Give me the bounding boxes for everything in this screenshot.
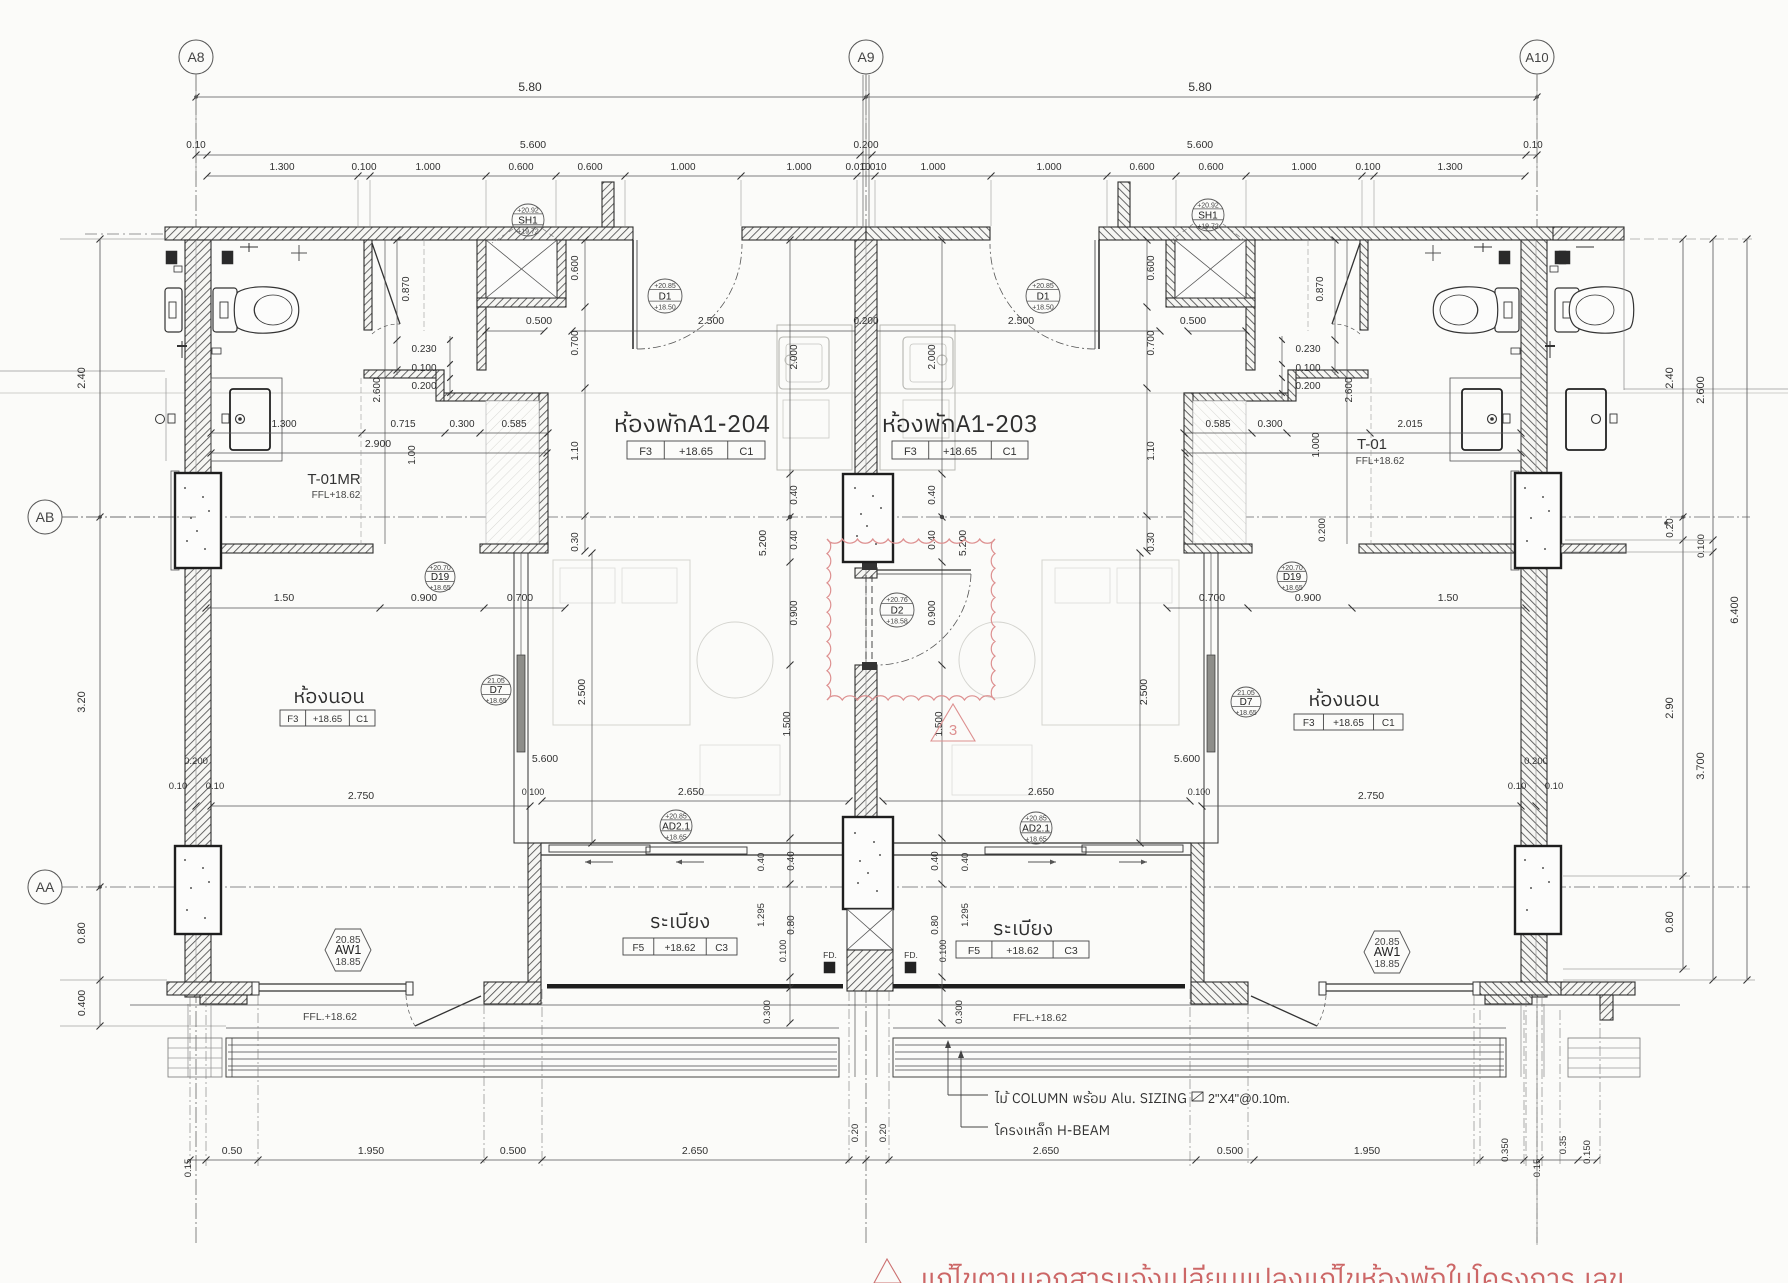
- svg-text:5.80: 5.80: [1188, 80, 1212, 94]
- svg-text:0.600: 0.600: [570, 255, 581, 280]
- svg-text:0.40: 0.40: [756, 853, 767, 872]
- svg-text:2.600: 2.600: [1695, 376, 1707, 404]
- svg-text:C1: C1: [1003, 446, 1017, 458]
- svg-text:5.600: 5.600: [520, 139, 546, 151]
- svg-text:0.10: 0.10: [1545, 781, 1564, 792]
- svg-text:FFL.+18.62: FFL.+18.62: [1013, 1012, 1067, 1024]
- svg-text:0.100: 0.100: [778, 940, 788, 963]
- svg-text:C1: C1: [356, 714, 368, 725]
- svg-text:SH1: SH1: [1198, 210, 1218, 221]
- svg-text:+18.65: +18.65: [1281, 585, 1303, 592]
- svg-text:0.40: 0.40: [927, 530, 938, 550]
- svg-text:+20.70: +20.70: [1281, 565, 1303, 572]
- svg-text:0.715: 0.715: [390, 419, 415, 430]
- svg-text:1.50: 1.50: [1438, 592, 1459, 604]
- svg-text:0.40: 0.40: [786, 851, 797, 871]
- svg-text:5.600: 5.600: [1187, 139, 1213, 151]
- svg-text:2.600: 2.600: [1344, 377, 1355, 402]
- svg-text:0.100: 0.100: [1295, 363, 1320, 374]
- svg-text:0.40: 0.40: [960, 853, 971, 872]
- svg-text:0.200: 0.200: [1524, 756, 1548, 767]
- svg-text:0.200: 0.200: [853, 316, 878, 327]
- svg-text:+20.85: +20.85: [1025, 815, 1047, 822]
- svg-text:A10: A10: [1525, 50, 1548, 65]
- svg-text:+18.65: +18.65: [313, 714, 342, 725]
- svg-text:1.295: 1.295: [756, 903, 767, 927]
- svg-text:0.100: 0.100: [522, 787, 545, 797]
- svg-text:1.500: 1.500: [782, 711, 793, 736]
- svg-text:0.100: 0.100: [411, 363, 436, 374]
- svg-text:0.500: 0.500: [1217, 1145, 1243, 1157]
- svg-text:A9: A9: [857, 49, 874, 65]
- svg-text:0.100: 0.100: [1696, 534, 1707, 558]
- svg-text:2.750: 2.750: [348, 790, 374, 802]
- svg-text:0.900: 0.900: [1295, 592, 1321, 604]
- svg-text:0.200: 0.200: [1295, 381, 1320, 392]
- svg-text:18.85: 18.85: [335, 957, 360, 968]
- svg-text:2.500: 2.500: [1138, 679, 1150, 705]
- svg-text:0.230: 0.230: [411, 344, 436, 355]
- svg-text:0.10: 0.10: [1508, 781, 1527, 792]
- svg-text:0.10: 0.10: [186, 140, 206, 151]
- svg-text:2.600: 2.600: [372, 377, 383, 402]
- svg-text:C1: C1: [739, 446, 753, 458]
- svg-text:21.05: 21.05: [487, 678, 505, 685]
- svg-text:5.600: 5.600: [532, 753, 558, 765]
- svg-text:0.100: 0.100: [351, 162, 376, 173]
- svg-text:2.650: 2.650: [682, 1145, 708, 1157]
- svg-text:+20.85: +20.85: [654, 283, 676, 290]
- svg-text:+18.65: +18.65: [665, 834, 687, 841]
- svg-text:0.010: 0.010: [861, 162, 886, 173]
- svg-text:0.600: 0.600: [577, 162, 602, 173]
- svg-text:+20.85: +20.85: [665, 813, 687, 820]
- svg-text:0.900: 0.900: [411, 592, 437, 604]
- svg-text:2.000: 2.000: [789, 344, 800, 369]
- svg-text:0.80: 0.80: [786, 915, 797, 935]
- svg-text:0.200: 0.200: [853, 140, 878, 151]
- svg-text:1.300: 1.300: [269, 162, 294, 173]
- svg-text:0.300: 0.300: [762, 1000, 773, 1024]
- svg-text:+18.50: +18.50: [654, 305, 676, 312]
- svg-text:0.35: 0.35: [1558, 1136, 1569, 1155]
- svg-text:+18.50: +18.50: [1032, 305, 1054, 312]
- svg-text:+18.58: +18.58: [886, 619, 908, 626]
- svg-text:0.15: 0.15: [183, 1159, 194, 1178]
- svg-text:0.200: 0.200: [1317, 518, 1328, 542]
- svg-text:0.870: 0.870: [1315, 276, 1326, 301]
- svg-text:2.40: 2.40: [1664, 367, 1676, 388]
- svg-text:5.600: 5.600: [1174, 753, 1200, 765]
- svg-text:0.300: 0.300: [954, 1000, 965, 1024]
- svg-text:2.650: 2.650: [1033, 1145, 1059, 1157]
- svg-text:0.300: 0.300: [449, 419, 474, 430]
- svg-text:0.15: 0.15: [1532, 1159, 1543, 1178]
- svg-text:1.50: 1.50: [274, 592, 295, 604]
- svg-text:0.300: 0.300: [1257, 419, 1282, 430]
- svg-text:+19.72: +19.72: [1197, 223, 1219, 230]
- svg-text:F3: F3: [1303, 718, 1315, 729]
- svg-text:1.000: 1.000: [1036, 162, 1061, 173]
- svg-text:1.295: 1.295: [960, 903, 971, 927]
- svg-text:1.000: 1.000: [415, 162, 440, 173]
- svg-text:5.200: 5.200: [757, 530, 769, 556]
- svg-text:0.700: 0.700: [1199, 592, 1225, 604]
- svg-text:0.500: 0.500: [500, 1145, 526, 1157]
- svg-text:5.80: 5.80: [518, 80, 542, 94]
- svg-text:1.950: 1.950: [358, 1145, 384, 1157]
- svg-text:+18.65: +18.65: [679, 446, 713, 458]
- svg-text:0.700: 0.700: [570, 330, 581, 355]
- svg-text:2.650: 2.650: [678, 786, 704, 798]
- svg-text:2.500: 2.500: [576, 679, 588, 705]
- svg-text:+18.62: +18.62: [1006, 945, 1039, 957]
- svg-text:0.585: 0.585: [1205, 419, 1230, 430]
- svg-text:0.40: 0.40: [789, 530, 800, 550]
- svg-text:1.000: 1.000: [1291, 162, 1316, 173]
- svg-text:0.20: 0.20: [878, 1124, 889, 1143]
- svg-text:FD.: FD.: [904, 950, 918, 960]
- svg-text:AW1: AW1: [1374, 945, 1401, 959]
- svg-text:1.950: 1.950: [1354, 1145, 1380, 1157]
- svg-text:0.10: 0.10: [1523, 140, 1543, 151]
- svg-text:+18.65: +18.65: [1333, 718, 1364, 729]
- svg-text:+19.72: +19.72: [517, 228, 539, 235]
- svg-text:3: 3: [949, 722, 957, 739]
- svg-text:1.000: 1.000: [1311, 432, 1322, 457]
- svg-text:0.500: 0.500: [1180, 315, 1206, 327]
- svg-text:0.40: 0.40: [930, 851, 941, 871]
- svg-text:F3: F3: [639, 446, 652, 458]
- svg-text:SH1: SH1: [518, 215, 538, 226]
- svg-text:2.40: 2.40: [76, 367, 88, 388]
- svg-text:0.200: 0.200: [411, 381, 436, 392]
- svg-text:1.300: 1.300: [1437, 162, 1462, 173]
- svg-text:0.400: 0.400: [76, 990, 88, 1016]
- svg-text:0.30: 0.30: [1146, 532, 1157, 552]
- svg-text:D7: D7: [1240, 697, 1253, 708]
- svg-text:0.585: 0.585: [501, 419, 526, 430]
- svg-text:D7: D7: [490, 685, 503, 696]
- svg-text:0.150: 0.150: [1582, 1140, 1593, 1164]
- svg-text:AD2.1: AD2.1: [1022, 823, 1050, 834]
- svg-text:F5: F5: [968, 945, 980, 957]
- svg-text:FD.: FD.: [823, 950, 837, 960]
- svg-text:C1: C1: [1382, 718, 1395, 729]
- svg-text:0.80: 0.80: [1664, 911, 1676, 932]
- svg-text:C3: C3: [715, 943, 728, 954]
- svg-text:1.00: 1.00: [407, 445, 418, 465]
- svg-text:0.870: 0.870: [401, 276, 412, 301]
- svg-text:+20.92: +20.92: [1197, 202, 1219, 209]
- svg-text:1.000: 1.000: [786, 162, 811, 173]
- svg-text:D19: D19: [431, 572, 450, 583]
- svg-text:0.600: 0.600: [1146, 255, 1157, 280]
- svg-text:2.90: 2.90: [1664, 697, 1676, 718]
- svg-text:0.600: 0.600: [508, 162, 533, 173]
- svg-text:0.900: 0.900: [789, 600, 800, 625]
- svg-text:A8: A8: [187, 49, 204, 65]
- svg-text:T-01: T-01: [1357, 436, 1387, 453]
- svg-text:FFL+18.62: FFL+18.62: [312, 490, 361, 501]
- svg-text:F5: F5: [633, 943, 645, 954]
- svg-text:6.400: 6.400: [1729, 596, 1741, 624]
- svg-text:1.10: 1.10: [570, 441, 581, 461]
- svg-text:2.000: 2.000: [927, 344, 938, 369]
- svg-text:D1: D1: [659, 292, 672, 303]
- svg-text:0.100: 0.100: [1188, 787, 1211, 797]
- svg-text:0.700: 0.700: [1146, 330, 1157, 355]
- svg-text:+20.76: +20.76: [886, 597, 908, 604]
- svg-text:0.10: 0.10: [206, 781, 225, 792]
- svg-text:0.700: 0.700: [507, 592, 533, 604]
- svg-text:0.600: 0.600: [1129, 162, 1154, 173]
- svg-text:0.50: 0.50: [222, 1145, 243, 1157]
- svg-text:AW1: AW1: [335, 943, 362, 957]
- svg-text:FFL+18.62: FFL+18.62: [1356, 456, 1405, 467]
- svg-text:0.500: 0.500: [526, 315, 552, 327]
- svg-text:2.500: 2.500: [1008, 315, 1034, 327]
- svg-text:D1: D1: [1037, 292, 1050, 303]
- svg-text:1.300: 1.300: [271, 419, 296, 430]
- svg-text:2.500: 2.500: [698, 315, 724, 327]
- svg-text:T-01MR: T-01MR: [307, 471, 361, 488]
- svg-text:0.600: 0.600: [1198, 162, 1223, 173]
- svg-text:+18.62: +18.62: [665, 943, 696, 954]
- svg-text:0.30: 0.30: [570, 532, 581, 552]
- svg-text:0.20: 0.20: [850, 1124, 861, 1143]
- svg-text:1.000: 1.000: [920, 162, 945, 173]
- svg-text:+18.65: +18.65: [943, 446, 977, 458]
- svg-text:AB: AB: [36, 509, 55, 525]
- svg-text:+18.65: +18.65: [485, 698, 507, 705]
- svg-text:+18.65: +18.65: [1025, 836, 1047, 843]
- svg-text:3.20: 3.20: [76, 691, 88, 712]
- svg-text:+18.65: +18.65: [429, 585, 451, 592]
- svg-text:2.900: 2.900: [365, 438, 391, 450]
- svg-text:2.650: 2.650: [1028, 786, 1054, 798]
- svg-text:0.80: 0.80: [76, 922, 88, 943]
- svg-text:0.230: 0.230: [1295, 344, 1320, 355]
- svg-text:0.40: 0.40: [927, 485, 938, 505]
- svg-text:1.000: 1.000: [670, 162, 695, 173]
- svg-text:0.10: 0.10: [169, 781, 188, 792]
- svg-text:F3: F3: [904, 446, 917, 458]
- svg-text:2"X4"@0.10m.: 2"X4"@0.10m.: [1208, 1092, 1290, 1106]
- svg-text:1.10: 1.10: [1146, 441, 1157, 461]
- svg-text:0.40: 0.40: [789, 485, 800, 505]
- svg-text:+18.65: +18.65: [1235, 710, 1257, 717]
- svg-text:D19: D19: [1283, 572, 1302, 583]
- svg-text:21.05: 21.05: [1237, 690, 1255, 697]
- svg-text:+20.92: +20.92: [517, 207, 539, 214]
- svg-text:+20.85: +20.85: [1032, 283, 1054, 290]
- svg-text:0.200: 0.200: [184, 756, 208, 767]
- svg-text:3.700: 3.700: [1695, 752, 1707, 780]
- svg-text:F3: F3: [287, 714, 298, 725]
- svg-text:0.900: 0.900: [927, 600, 938, 625]
- svg-text:0.100: 0.100: [938, 940, 948, 963]
- svg-text:FFL.+18.62: FFL.+18.62: [303, 1011, 357, 1023]
- svg-text:AD2.1: AD2.1: [662, 821, 690, 832]
- svg-text:18.85: 18.85: [1374, 959, 1399, 970]
- svg-text:2.750: 2.750: [1358, 790, 1384, 802]
- svg-text:0.80: 0.80: [930, 915, 941, 935]
- svg-text:AA: AA: [36, 879, 55, 895]
- svg-text:0.20: 0.20: [1665, 518, 1676, 538]
- svg-text:0.350: 0.350: [1500, 1138, 1511, 1162]
- svg-text:D2: D2: [891, 606, 904, 617]
- svg-text:+20.70: +20.70: [429, 565, 451, 572]
- svg-text:2.015: 2.015: [1397, 419, 1422, 430]
- svg-text:C3: C3: [1064, 945, 1078, 957]
- svg-text:0.100: 0.100: [1355, 162, 1380, 173]
